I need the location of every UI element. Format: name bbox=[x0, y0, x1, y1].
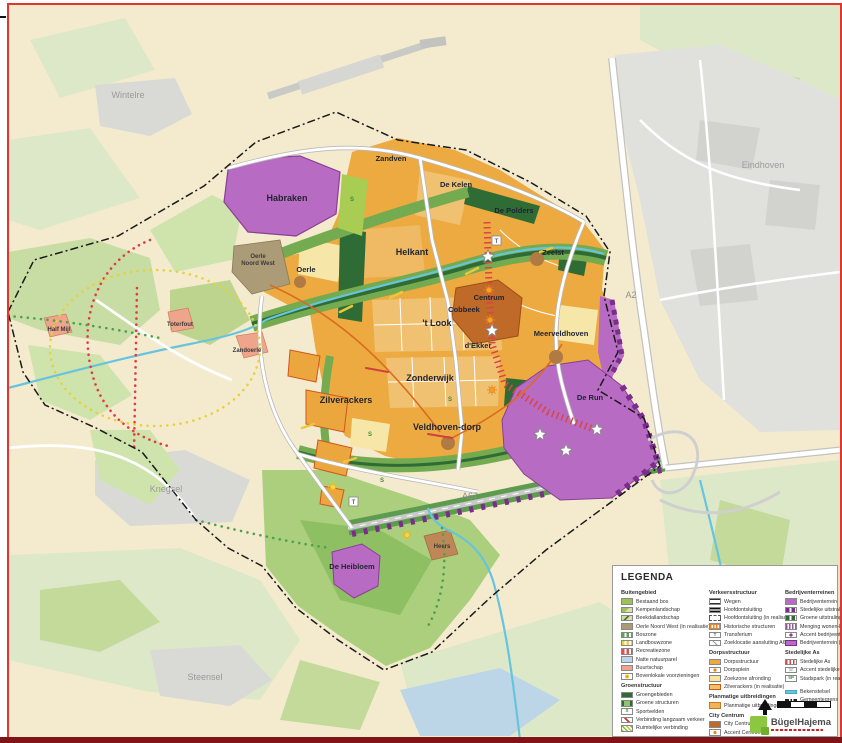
label-knegsel: Knegsel bbox=[150, 484, 183, 494]
legend-item: Groene uitstraling bbox=[785, 614, 842, 622]
label-zilverackers: Zilverackers bbox=[320, 395, 373, 405]
beekdallandschap-swatch-icon bbox=[621, 615, 633, 622]
oerle-nw-swatch-icon bbox=[621, 623, 633, 630]
label-t-look: 't Look bbox=[422, 318, 452, 328]
transferium-swatch-icon: T bbox=[709, 632, 721, 639]
legend-item: Zilverackers (in realisatie) bbox=[709, 683, 781, 691]
legend-panel: LEGENDA Buitengebied Bestaand bos Kempen… bbox=[612, 565, 838, 737]
natte-natuurparel-swatch-icon bbox=[621, 656, 633, 663]
wegen-swatch-icon bbox=[709, 598, 721, 605]
label-de-polders: De Polders bbox=[494, 206, 533, 215]
buurtschap-swatch-icon bbox=[621, 665, 633, 672]
zilverackers-ir-swatch-icon bbox=[709, 684, 721, 691]
stedelijke-as-swatch-icon bbox=[785, 659, 797, 666]
label-steensel: Steensel bbox=[187, 672, 222, 682]
structuurvisie-map-page: T T S S S S Wintelre Eindhoven Knegsel S… bbox=[0, 0, 842, 743]
legend-header: Stedelijke As bbox=[785, 650, 842, 656]
hoofdontsluiting-ir-swatch-icon bbox=[709, 615, 721, 622]
scale-bar bbox=[777, 701, 831, 708]
label-de-kelen: De Kelen bbox=[440, 180, 473, 189]
label-habraken: Habraken bbox=[266, 193, 307, 203]
historische-structuren-swatch-icon bbox=[709, 623, 721, 630]
label-d-ekker: d'Ekker bbox=[465, 341, 492, 350]
accent-bedrijventerrein-swatch-icon bbox=[785, 632, 797, 639]
legend-item: Landbouwzone bbox=[621, 639, 705, 647]
legend-item: Recreatiezone bbox=[621, 647, 705, 655]
stadspark-swatch-icon: SP bbox=[785, 675, 797, 682]
bugelhajema-logo-text: BügelHajema bbox=[771, 718, 831, 728]
legend-item: Bedrijventerrein (in realisatie) bbox=[785, 639, 842, 647]
legend-item: Buurtschap bbox=[621, 664, 705, 672]
stedelijke-uitstraling-swatch-icon bbox=[785, 607, 797, 614]
legend-item: Dorpsstructuur bbox=[709, 658, 781, 666]
legend-item: Ruimtelijke verbinding bbox=[621, 724, 705, 732]
label-oerle-nw-1: Oerle bbox=[250, 254, 266, 260]
legend-header: Dorpsstructuur bbox=[709, 650, 781, 656]
map-navigation bbox=[758, 699, 831, 710]
label-zeelst: Zeelst bbox=[542, 248, 564, 257]
bovenlokale-sun-swatch-icon bbox=[621, 673, 633, 680]
label-oerle-nw-2: Noord West bbox=[241, 261, 275, 267]
label-zandoerle: Zandoerle bbox=[233, 348, 262, 354]
verbinding-langzaam-swatch-icon bbox=[621, 717, 633, 724]
north-arrow-icon bbox=[758, 699, 772, 710]
sportvelden-swatch-icon: S bbox=[621, 708, 633, 715]
sport-s-icon: S bbox=[350, 197, 354, 203]
legend-item: Kempenlandschap bbox=[621, 606, 705, 614]
zoekzone-afronding-swatch-icon bbox=[709, 675, 721, 682]
legend-item: Bedrijventerrein bbox=[785, 598, 842, 606]
dorpsplein-swatch-icon bbox=[709, 667, 721, 674]
legend-item: Bestaand bos bbox=[621, 598, 705, 606]
legend-item: SPStadspark (in realisatie) bbox=[785, 674, 842, 682]
groene-structuren-swatch-icon bbox=[621, 700, 633, 707]
accent-stedelijke-as-star-icon: ☆ bbox=[785, 667, 797, 674]
label-zandven: Zandven bbox=[376, 154, 407, 163]
bottom-frame-bar bbox=[0, 737, 842, 743]
legend-header: Bedrijventerreinen bbox=[785, 590, 842, 596]
legend-item: TTransferium bbox=[709, 631, 781, 639]
label-meerveldhoven: Meerveldhoven bbox=[534, 329, 589, 338]
label-veldhoven-dorp: Veldhoven-dorp bbox=[413, 422, 482, 432]
bestaand-bos-swatch-icon bbox=[621, 598, 633, 605]
groene-uitstraling-swatch-icon bbox=[785, 615, 797, 622]
label-toterfout: Toterfout bbox=[167, 322, 193, 328]
legend-header: Buitengebied bbox=[621, 590, 705, 596]
legend-item: Wegen bbox=[709, 598, 781, 606]
legend-item: Groengebieden bbox=[621, 691, 705, 699]
label-centrum: Centrum bbox=[474, 293, 505, 302]
legend-item: Stedelijke uitstraling bbox=[785, 606, 842, 614]
landbouwzone-swatch-icon bbox=[621, 640, 633, 647]
legend-item: Hoofdontsluiting bbox=[709, 606, 781, 614]
legend-column-buitengebied: Buitengebied Bestaand bos Kempenlandscha… bbox=[621, 587, 705, 743]
groengebieden-swatch-icon bbox=[621, 692, 633, 699]
city-centrum-swatch-icon bbox=[709, 721, 721, 728]
recreatiezone-swatch-icon bbox=[621, 648, 633, 655]
bekenstelsel-swatch-icon bbox=[785, 690, 797, 694]
hoofdontsluiting-swatch-icon bbox=[709, 607, 721, 614]
legend-item: Zoekzone afronding bbox=[709, 674, 781, 682]
transferium-t-icon: T bbox=[352, 500, 356, 506]
label-zonderwijk: Zonderwijk bbox=[406, 373, 454, 383]
bugelhajema-logo-icon bbox=[750, 716, 767, 733]
legend-item: Groene structuren bbox=[621, 699, 705, 707]
label-oerle: Oerle bbox=[296, 265, 315, 274]
legend-item: Menging wonen-bedrijven bbox=[785, 622, 842, 630]
bugelhajema-logo: BügelHajema bbox=[750, 716, 831, 733]
label-a2: A2 bbox=[625, 290, 636, 300]
label-heers: Heers bbox=[434, 544, 451, 550]
legend-item: Oerle Noord West (in realisatie) bbox=[621, 622, 705, 630]
label-a67: A67 bbox=[462, 491, 478, 501]
legend-title: LEGENDA bbox=[621, 572, 831, 583]
label-wintelre: Wintelre bbox=[111, 90, 144, 100]
label-de-run: De Run bbox=[577, 393, 604, 402]
label-helkant: Helkant bbox=[396, 247, 429, 257]
legend-item: Natte natuurparel bbox=[621, 656, 705, 664]
label-eindhoven: Eindhoven bbox=[742, 160, 785, 170]
menging-wonen-bedrijven-swatch-icon bbox=[785, 623, 797, 630]
label-de-heibloem: De Heibloem bbox=[329, 562, 375, 571]
legend-item: ☆Accent stedelijke as bbox=[785, 666, 842, 674]
zoeklocatie-a67-swatch-icon bbox=[709, 640, 721, 647]
legend-item: SSportvelden bbox=[621, 708, 705, 716]
dorpsstructuur-swatch-icon bbox=[709, 659, 721, 666]
legend-item: Hoofdontsluiting (in realisatie) bbox=[709, 614, 781, 622]
ruimtelijke-verbinding-swatch-icon bbox=[621, 725, 633, 732]
accent-centrum-swatch-icon bbox=[709, 729, 721, 736]
svg-text:S: S bbox=[368, 432, 372, 438]
bugelhajema-tagline bbox=[771, 729, 823, 731]
legend-item: Bekenstelsel bbox=[785, 688, 842, 696]
crop-mark bbox=[0, 16, 6, 18]
legend-item: Bovenlokale voorzieningen bbox=[621, 672, 705, 680]
label-cobbeek: Cobbeek bbox=[448, 305, 481, 314]
svg-text:S: S bbox=[380, 478, 384, 484]
legend-header: Verkeersstructuur bbox=[709, 590, 781, 596]
legend-item: Zoeklocatie aansluiting A67 bbox=[709, 639, 781, 647]
legend-item: Verbinding langzaam verkeer bbox=[621, 716, 705, 724]
legend-item: Stedelijke As bbox=[785, 658, 842, 666]
legend-header: Groenstructuur bbox=[621, 683, 705, 689]
legend-item: Dorpsplein bbox=[709, 666, 781, 674]
svg-text:T: T bbox=[495, 239, 499, 245]
kempenlandschap-swatch-icon bbox=[621, 607, 633, 614]
svg-text:S: S bbox=[448, 397, 452, 403]
bedrijventerrein-ir-swatch-icon bbox=[785, 640, 797, 647]
legend-item: Accent bedrijventerrein bbox=[785, 631, 842, 639]
bedrijventerrein-swatch-icon bbox=[785, 598, 797, 605]
label-half-mijl: Half Mijl bbox=[47, 327, 70, 333]
legend-item: Boszone bbox=[621, 631, 705, 639]
boszone-swatch-icon bbox=[621, 632, 633, 639]
planmatige-uitbreidingen-swatch-icon bbox=[709, 702, 721, 709]
legend-item: Beekdallandschap bbox=[621, 614, 705, 622]
legend-item: Historische structuren bbox=[709, 622, 781, 630]
